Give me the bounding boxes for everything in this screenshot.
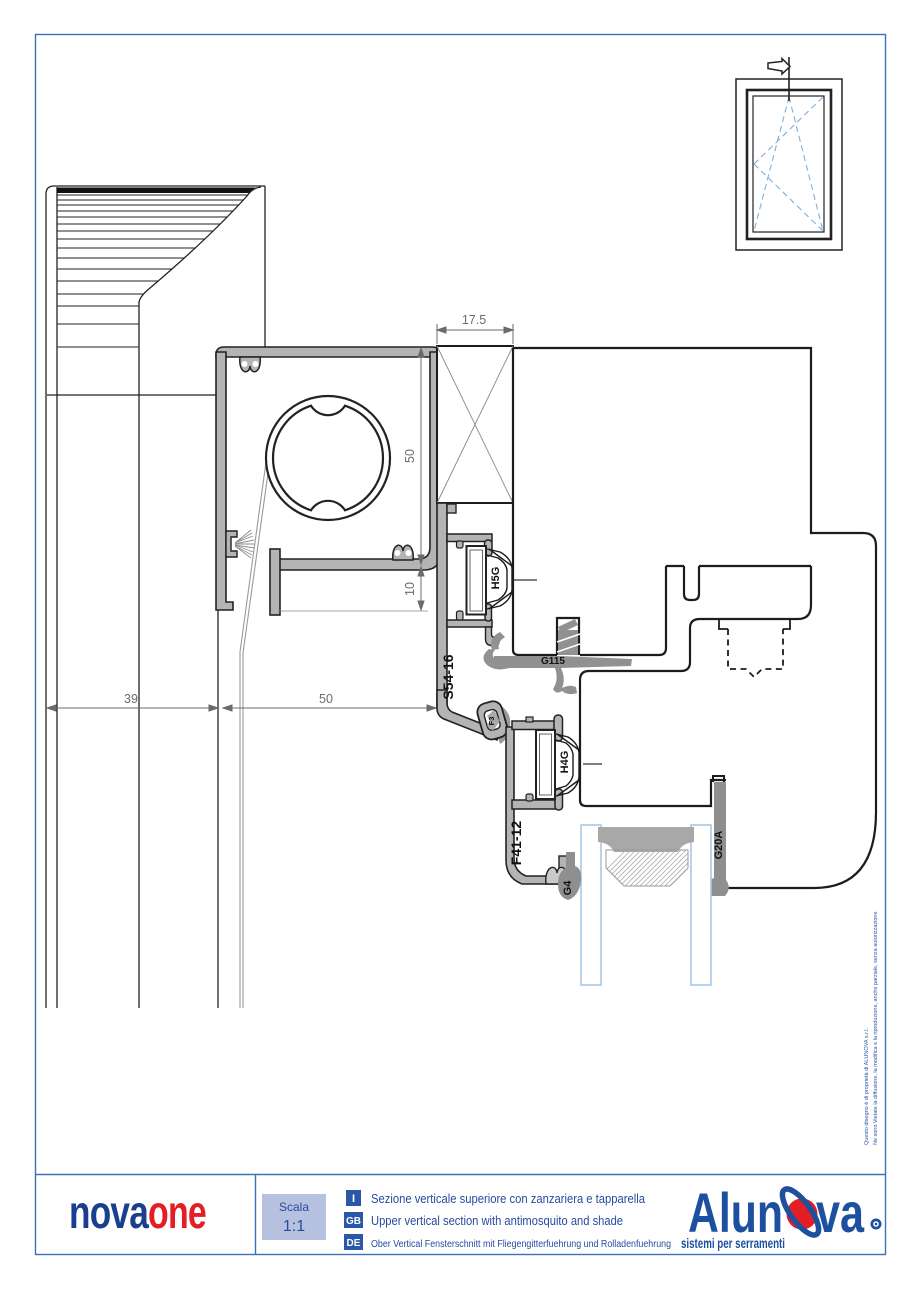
- svg-text:Upper vertical section with an: Upper vertical section with antimosquito…: [371, 1214, 623, 1228]
- svg-text:GB: GB: [346, 1216, 361, 1227]
- svg-text:Sezione verticale superiore co: Sezione verticale superiore con zanzarie…: [371, 1192, 645, 1206]
- svg-text:H5G: H5G: [490, 567, 502, 590]
- svg-text:Questo disegno è di proprietà: Questo disegno è di proprietà di ALUNOVA…: [864, 1028, 870, 1145]
- svg-text:DE: DE: [347, 1238, 361, 1249]
- svg-text:Ne sono Vietate la diffusione,: Ne sono Vietate la diffusione, la modifi…: [873, 910, 879, 1145]
- svg-text:Ober Vertical Fensterschnitt m: Ober Vertical Fensterschnitt mit Fliegen…: [371, 1239, 671, 1250]
- svg-text:G20A: G20A: [713, 831, 725, 860]
- svg-text:F3: F3: [487, 717, 496, 726]
- svg-text:17.5: 17.5: [462, 313, 486, 327]
- svg-text:50: 50: [403, 449, 417, 463]
- svg-text:F41-12: F41-12: [508, 821, 524, 866]
- svg-text:50: 50: [319, 692, 333, 706]
- svg-text:G115: G115: [541, 656, 565, 667]
- svg-text:I: I: [352, 1193, 355, 1205]
- svg-text:novaone: novaone: [69, 1186, 206, 1238]
- svg-text:10: 10: [403, 582, 417, 596]
- svg-text:G4: G4: [562, 880, 574, 896]
- svg-text:H4G: H4G: [559, 751, 571, 774]
- svg-text:39: 39: [124, 692, 138, 706]
- svg-text:S54-16: S54-16: [440, 654, 456, 699]
- svg-text:sistemi per serramenti: sistemi per serramenti: [681, 1235, 785, 1251]
- svg-text:1:1: 1:1: [283, 1218, 305, 1235]
- svg-text:Scala: Scala: [279, 1200, 309, 1214]
